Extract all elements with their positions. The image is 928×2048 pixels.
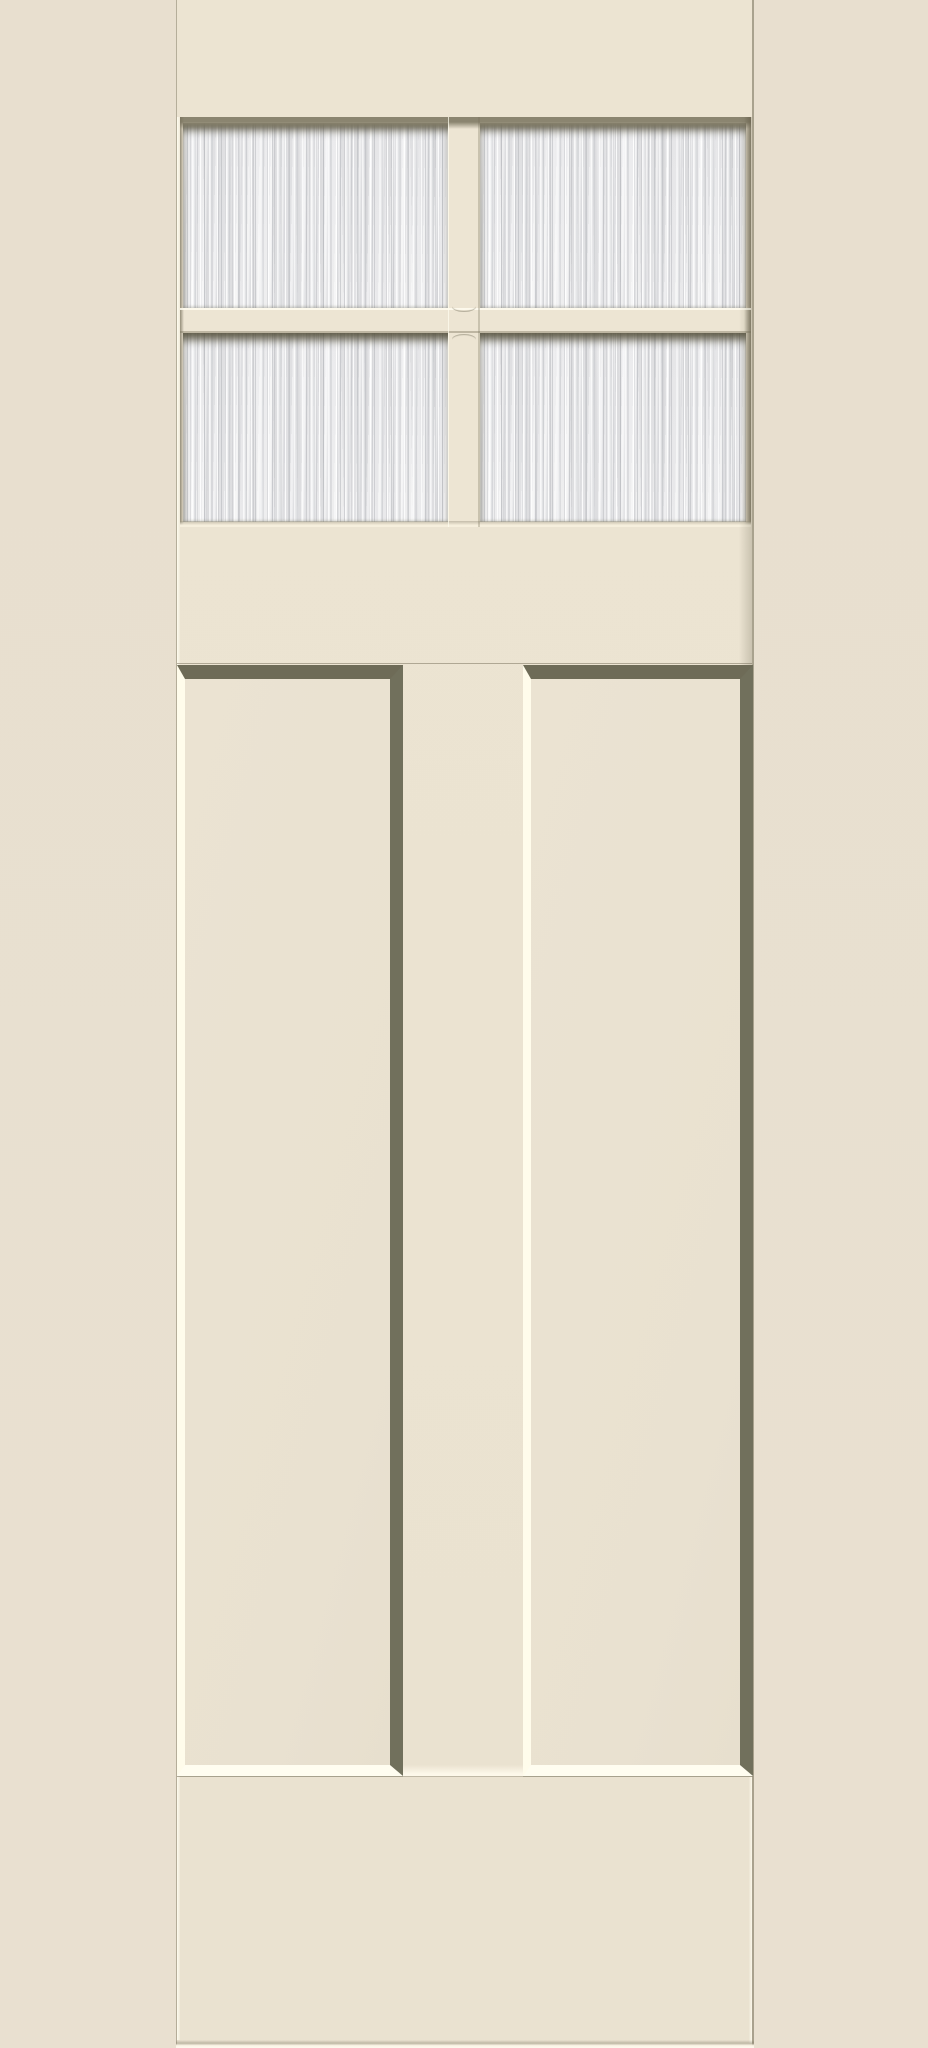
door-right-soft-shadow	[739, 117, 752, 668]
background-wall-right	[754, 0, 928, 2048]
top-rail	[177, 0, 752, 117]
rail-joint-hairline-top	[177, 663, 752, 664]
door-slab	[176, 0, 754, 2048]
muntin-vertical-bar-shadow	[478, 117, 480, 527]
background-wall-left	[0, 0, 176, 2048]
door-bottom-edge-highlight	[176, 2040, 754, 2048]
panel-left	[177, 665, 403, 1776]
lock-rail	[177, 527, 752, 665]
muntin-vertical-bar-highlight	[448, 117, 449, 527]
lite-top-left	[183, 123, 448, 308]
panel-right	[523, 665, 753, 1776]
center-stile	[403, 665, 523, 1776]
lite-top-right	[480, 123, 746, 308]
product-photo-door: { "scene": { "type": "product-photo", "s…	[0, 0, 928, 2048]
center-stile-bottom-highlight	[403, 1765, 523, 1776]
lite-bottom-right	[480, 333, 746, 522]
muntin-joint-notch-bottom	[452, 334, 476, 344]
glass-frame-top-shadow	[180, 117, 751, 129]
bottom-rail	[177, 1777, 752, 2048]
muntin-horizontal-bar-shadow	[180, 331, 751, 333]
muntin-joint-notch-top	[452, 302, 476, 312]
glass-grid	[180, 117, 751, 527]
lite-bottom-left	[183, 333, 448, 522]
glass-frame-left-shadow	[180, 117, 184, 527]
